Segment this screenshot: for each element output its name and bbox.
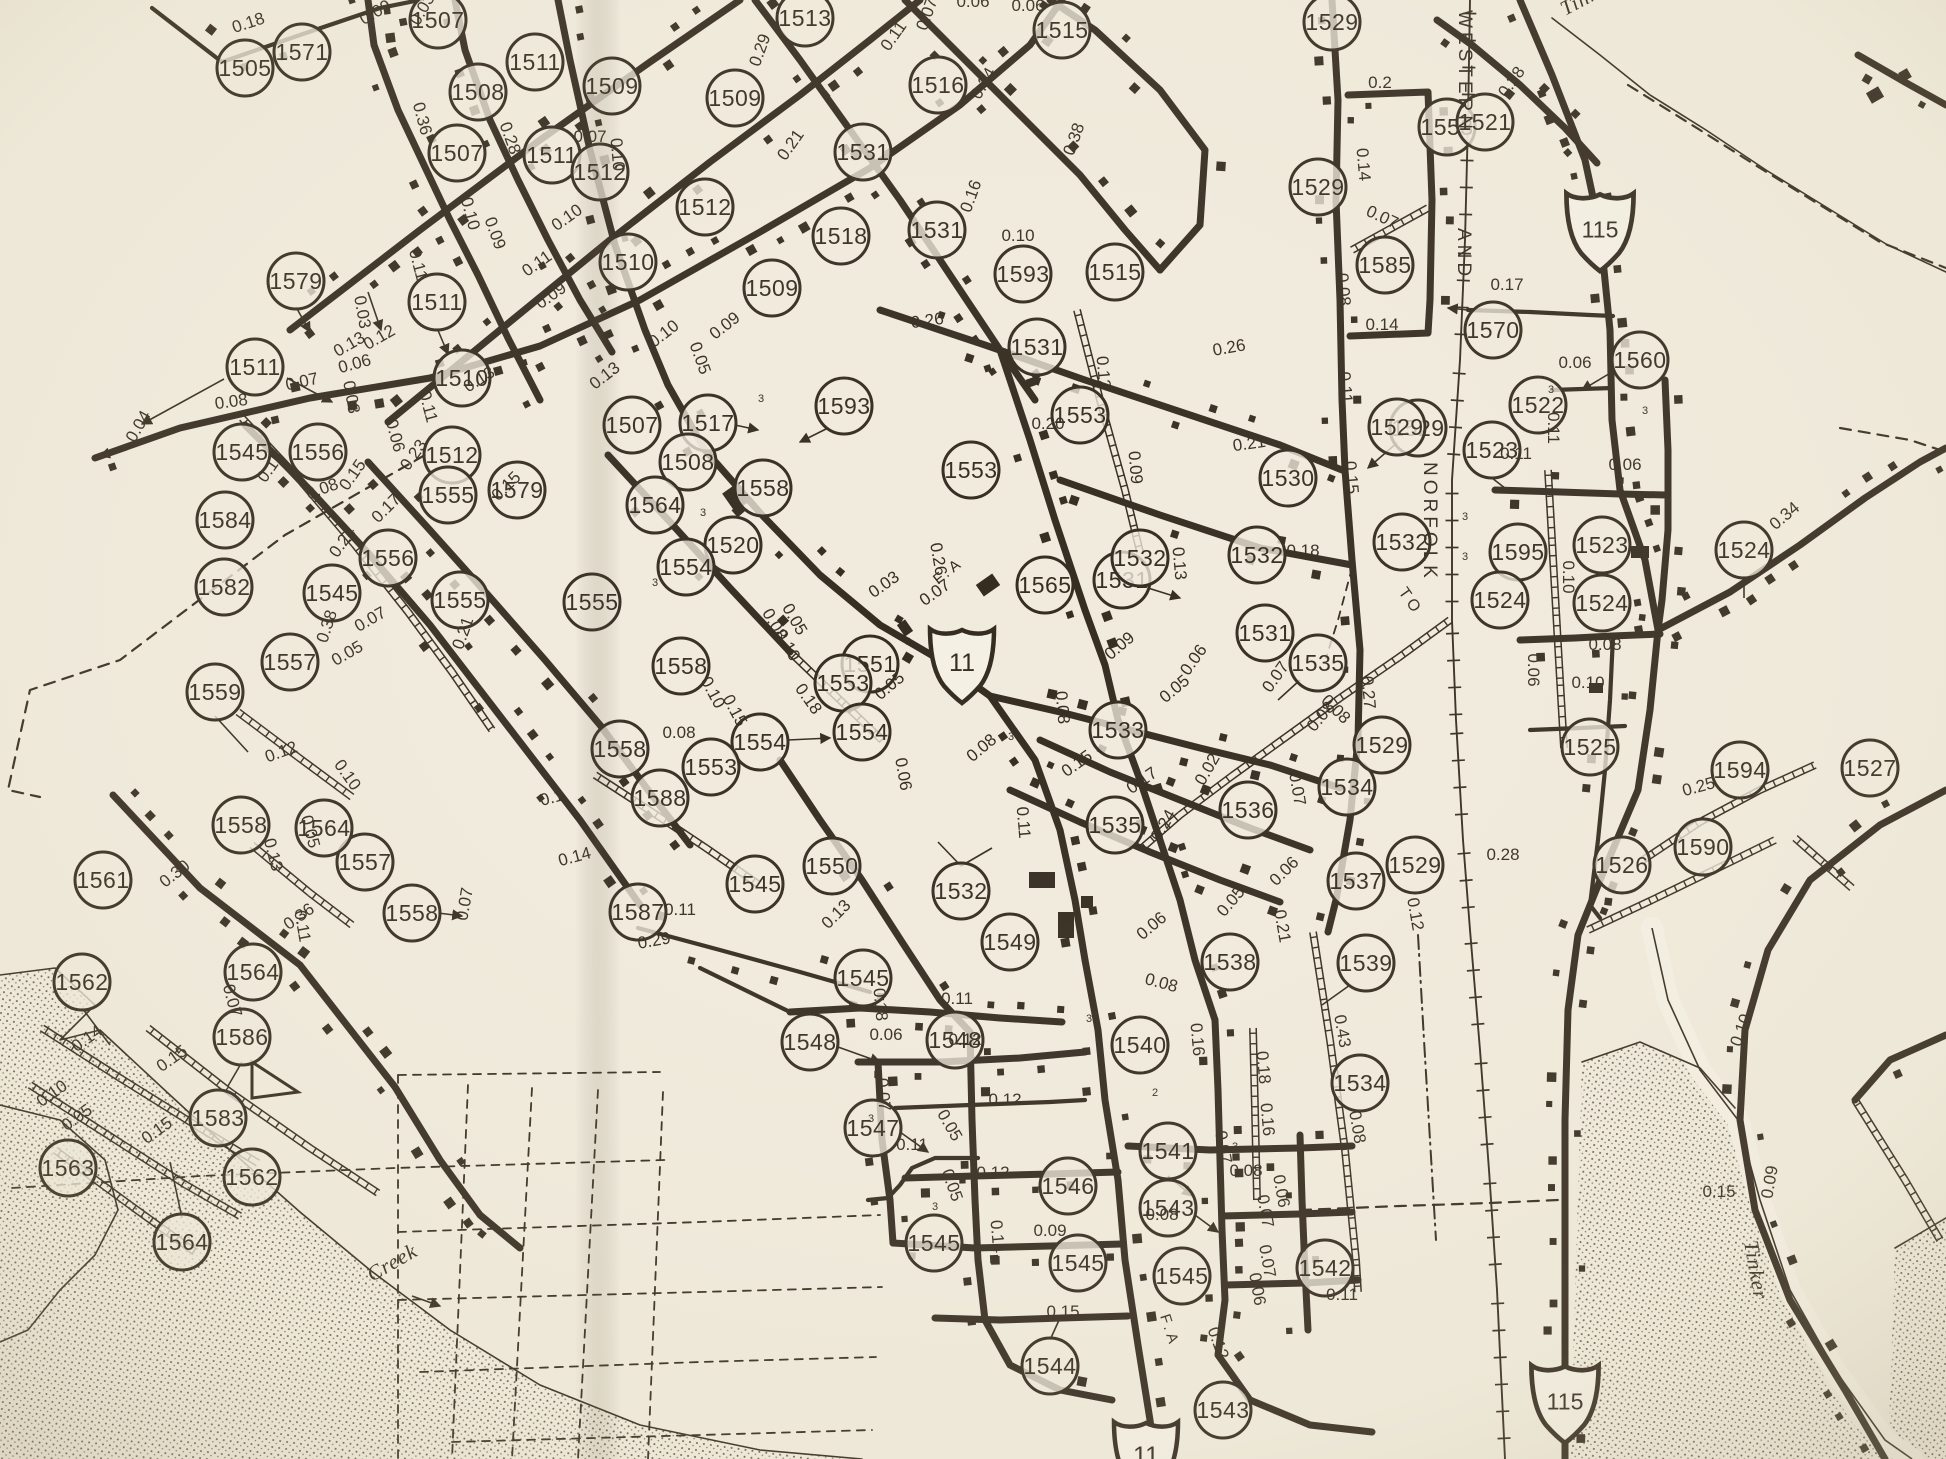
photo-vignette [0, 0, 1946, 1459]
map-canvas: 1505157115071508151115091507151115121512… [0, 0, 1946, 1459]
scanned-highway-map: 1505157115071508151115091507151115121512… [0, 0, 1946, 1459]
